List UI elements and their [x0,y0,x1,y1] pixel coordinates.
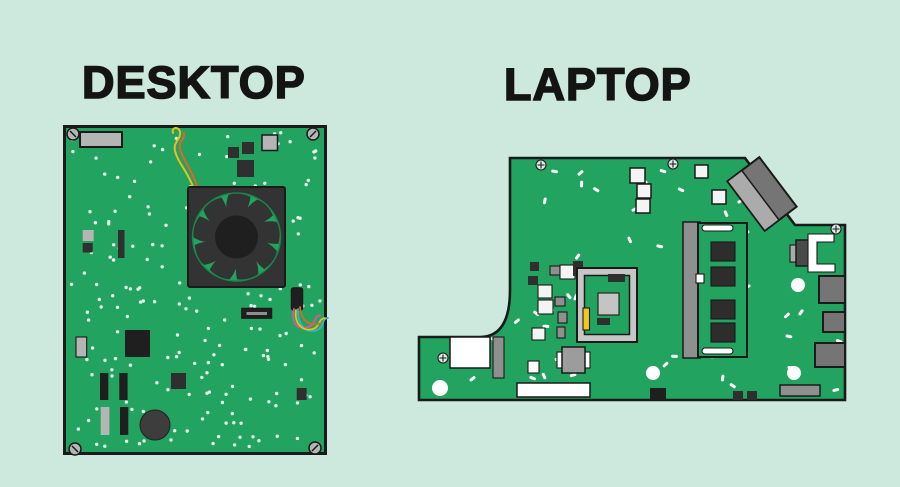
screw-icon [67,128,79,140]
chip [262,135,278,151]
ram-chip [711,323,735,342]
chipset [125,330,150,357]
expansion-slot [242,308,272,318]
chip [733,391,743,400]
mounting-hole [646,366,660,380]
memory-bar [101,407,110,435]
white-capacitor [538,300,553,314]
ram-clip [702,225,733,231]
chip [528,276,538,285]
white-capacitor [560,265,575,279]
fan-hub [215,216,258,259]
screw-icon [307,128,319,140]
screw-icon [69,443,81,455]
chip [558,312,567,323]
chip [650,388,666,400]
chip [557,327,565,338]
chip [83,230,94,241]
socket-notch [608,274,625,282]
chip [228,147,239,158]
cpu-fan [188,187,285,287]
chip [297,388,307,400]
illustration-canvas: DESKTOP LAPTOP [0,0,900,487]
chip [747,391,757,400]
chip [550,266,560,275]
memory-bar [118,230,125,258]
ram-module [683,222,747,358]
ram-chip [711,300,735,319]
ram-chip [711,242,735,261]
yellow-latch [583,308,590,330]
desktop-motherboard [63,125,327,455]
screw-icon [536,160,546,170]
memory-bar [100,373,108,400]
memory-bar [119,373,127,400]
white-capacitor [630,168,645,183]
white-capacitor [712,190,726,204]
mounting-hole [432,380,448,396]
screw-icon [668,159,678,169]
chip [555,297,565,306]
cpu-socket [577,268,637,342]
mounting-hole [787,366,801,380]
chip [76,337,87,357]
capacitor [140,410,170,440]
desktop-board [65,127,326,454]
ram-chip [711,267,735,286]
side-port [815,343,845,367]
white-capacitor [532,328,545,340]
mounting-hole [791,278,805,292]
chip [171,373,186,389]
white-capacitor [538,285,552,298]
chip-with-tabs [557,347,590,373]
socket-notch [597,318,610,325]
ram-clip [702,348,733,354]
laptop-motherboard [419,158,845,400]
io-port [80,132,122,147]
screw-icon [309,442,321,454]
label-sticker [517,383,590,397]
chip [83,243,93,253]
white-capacitor [637,184,651,198]
chipset [237,160,254,177]
connector-bar [493,337,504,378]
chip [242,142,254,154]
memory-bar [120,407,128,435]
bottom-port [780,385,820,396]
desktop-title: DESKTOP [82,60,306,105]
chip [530,262,539,271]
screw-icon [438,353,448,363]
side-port [823,312,845,332]
screw-icon [831,224,841,234]
ram-notch [696,274,704,283]
label-sticker [450,337,490,368]
white-capacitor [636,199,650,213]
side-port [819,276,845,303]
white-capacitor [695,165,708,178]
white-capacitor [528,361,539,373]
cpu-die [598,293,619,315]
laptop-title: LAPTOP [504,62,692,107]
